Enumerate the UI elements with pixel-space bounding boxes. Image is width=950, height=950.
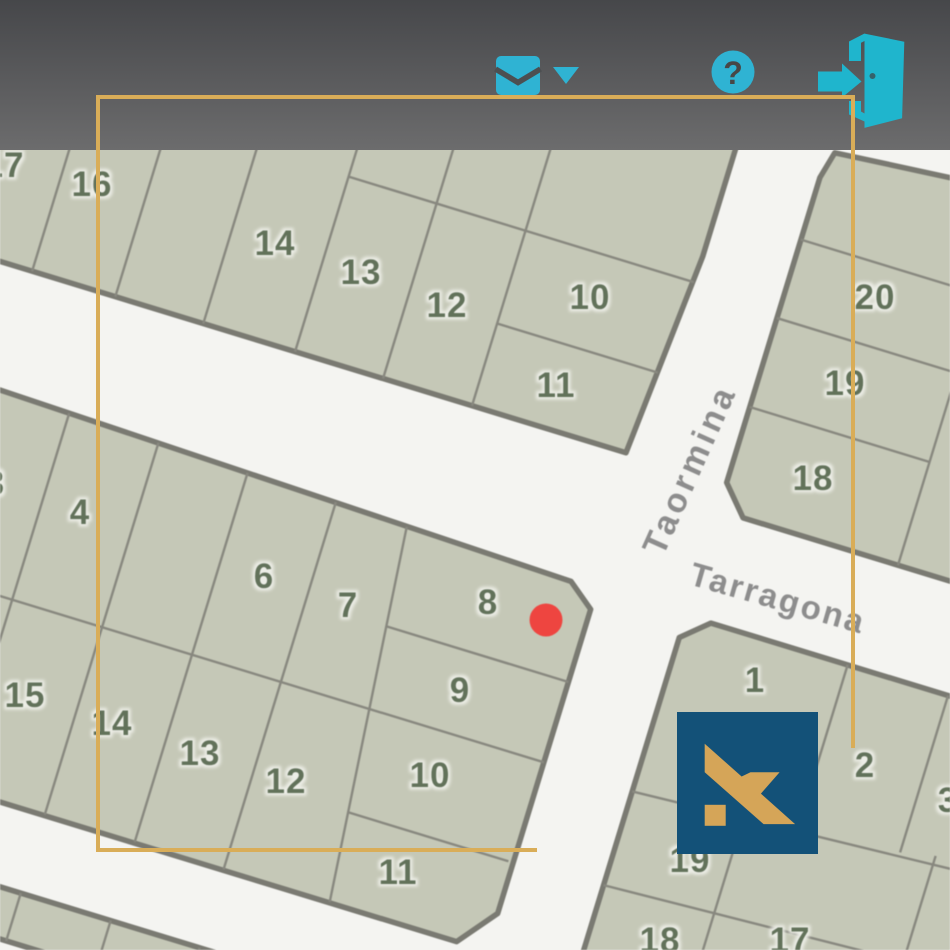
- svg-text:11: 11: [379, 853, 418, 892]
- svg-text:18: 18: [640, 921, 681, 950]
- svg-text:8: 8: [478, 583, 498, 622]
- svg-text:6: 6: [254, 557, 274, 596]
- svg-text:16: 16: [72, 165, 113, 204]
- svg-text:4: 4: [70, 493, 90, 532]
- svg-text:19: 19: [825, 364, 866, 403]
- svg-text:11: 11: [537, 366, 576, 405]
- svg-text:7: 7: [338, 586, 358, 625]
- svg-text:?: ?: [723, 55, 743, 91]
- svg-text:15: 15: [5, 676, 46, 715]
- svg-text:13: 13: [341, 253, 382, 292]
- svg-text:9: 9: [450, 671, 470, 710]
- svg-text:2: 2: [855, 746, 875, 785]
- svg-text:18: 18: [793, 459, 834, 498]
- svg-text:17: 17: [770, 921, 811, 950]
- svg-text:3: 3: [0, 464, 5, 503]
- svg-text:13: 13: [180, 734, 221, 773]
- svg-text:10: 10: [570, 278, 611, 317]
- svg-text:20: 20: [855, 278, 896, 317]
- svg-text:12: 12: [427, 286, 468, 325]
- svg-text:10: 10: [410, 756, 451, 795]
- svg-text:12: 12: [266, 762, 307, 801]
- svg-text:17: 17: [0, 146, 24, 185]
- svg-text:14: 14: [255, 224, 296, 263]
- svg-text:1: 1: [745, 661, 765, 700]
- svg-text:3: 3: [938, 781, 950, 820]
